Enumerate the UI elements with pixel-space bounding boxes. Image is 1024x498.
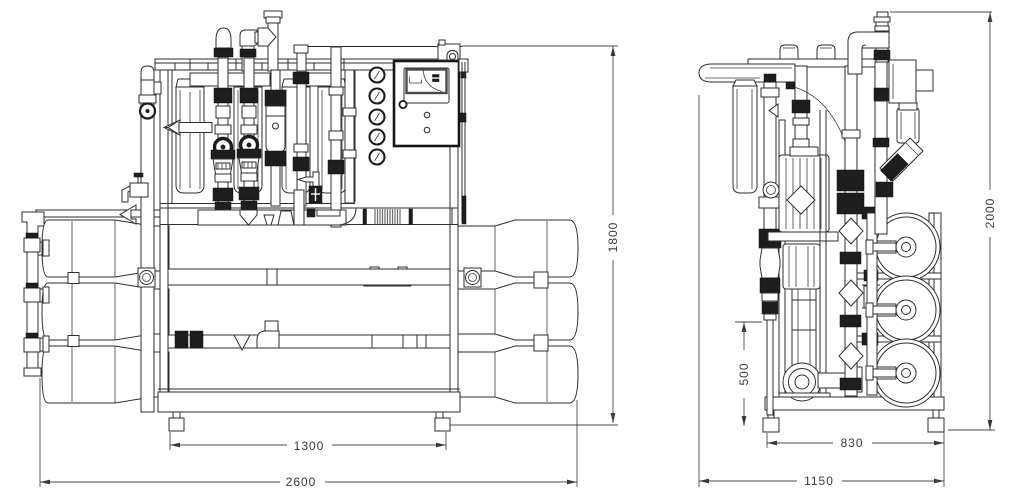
svg-text:830: 830 bbox=[840, 436, 863, 450]
svg-text:1150: 1150 bbox=[804, 474, 834, 488]
svg-text:2000: 2000 bbox=[983, 198, 997, 229]
svg-text:1300: 1300 bbox=[294, 439, 325, 453]
svg-text:500: 500 bbox=[737, 362, 751, 385]
svg-text:1800: 1800 bbox=[606, 222, 620, 253]
svg-text:2600: 2600 bbox=[286, 475, 317, 489]
